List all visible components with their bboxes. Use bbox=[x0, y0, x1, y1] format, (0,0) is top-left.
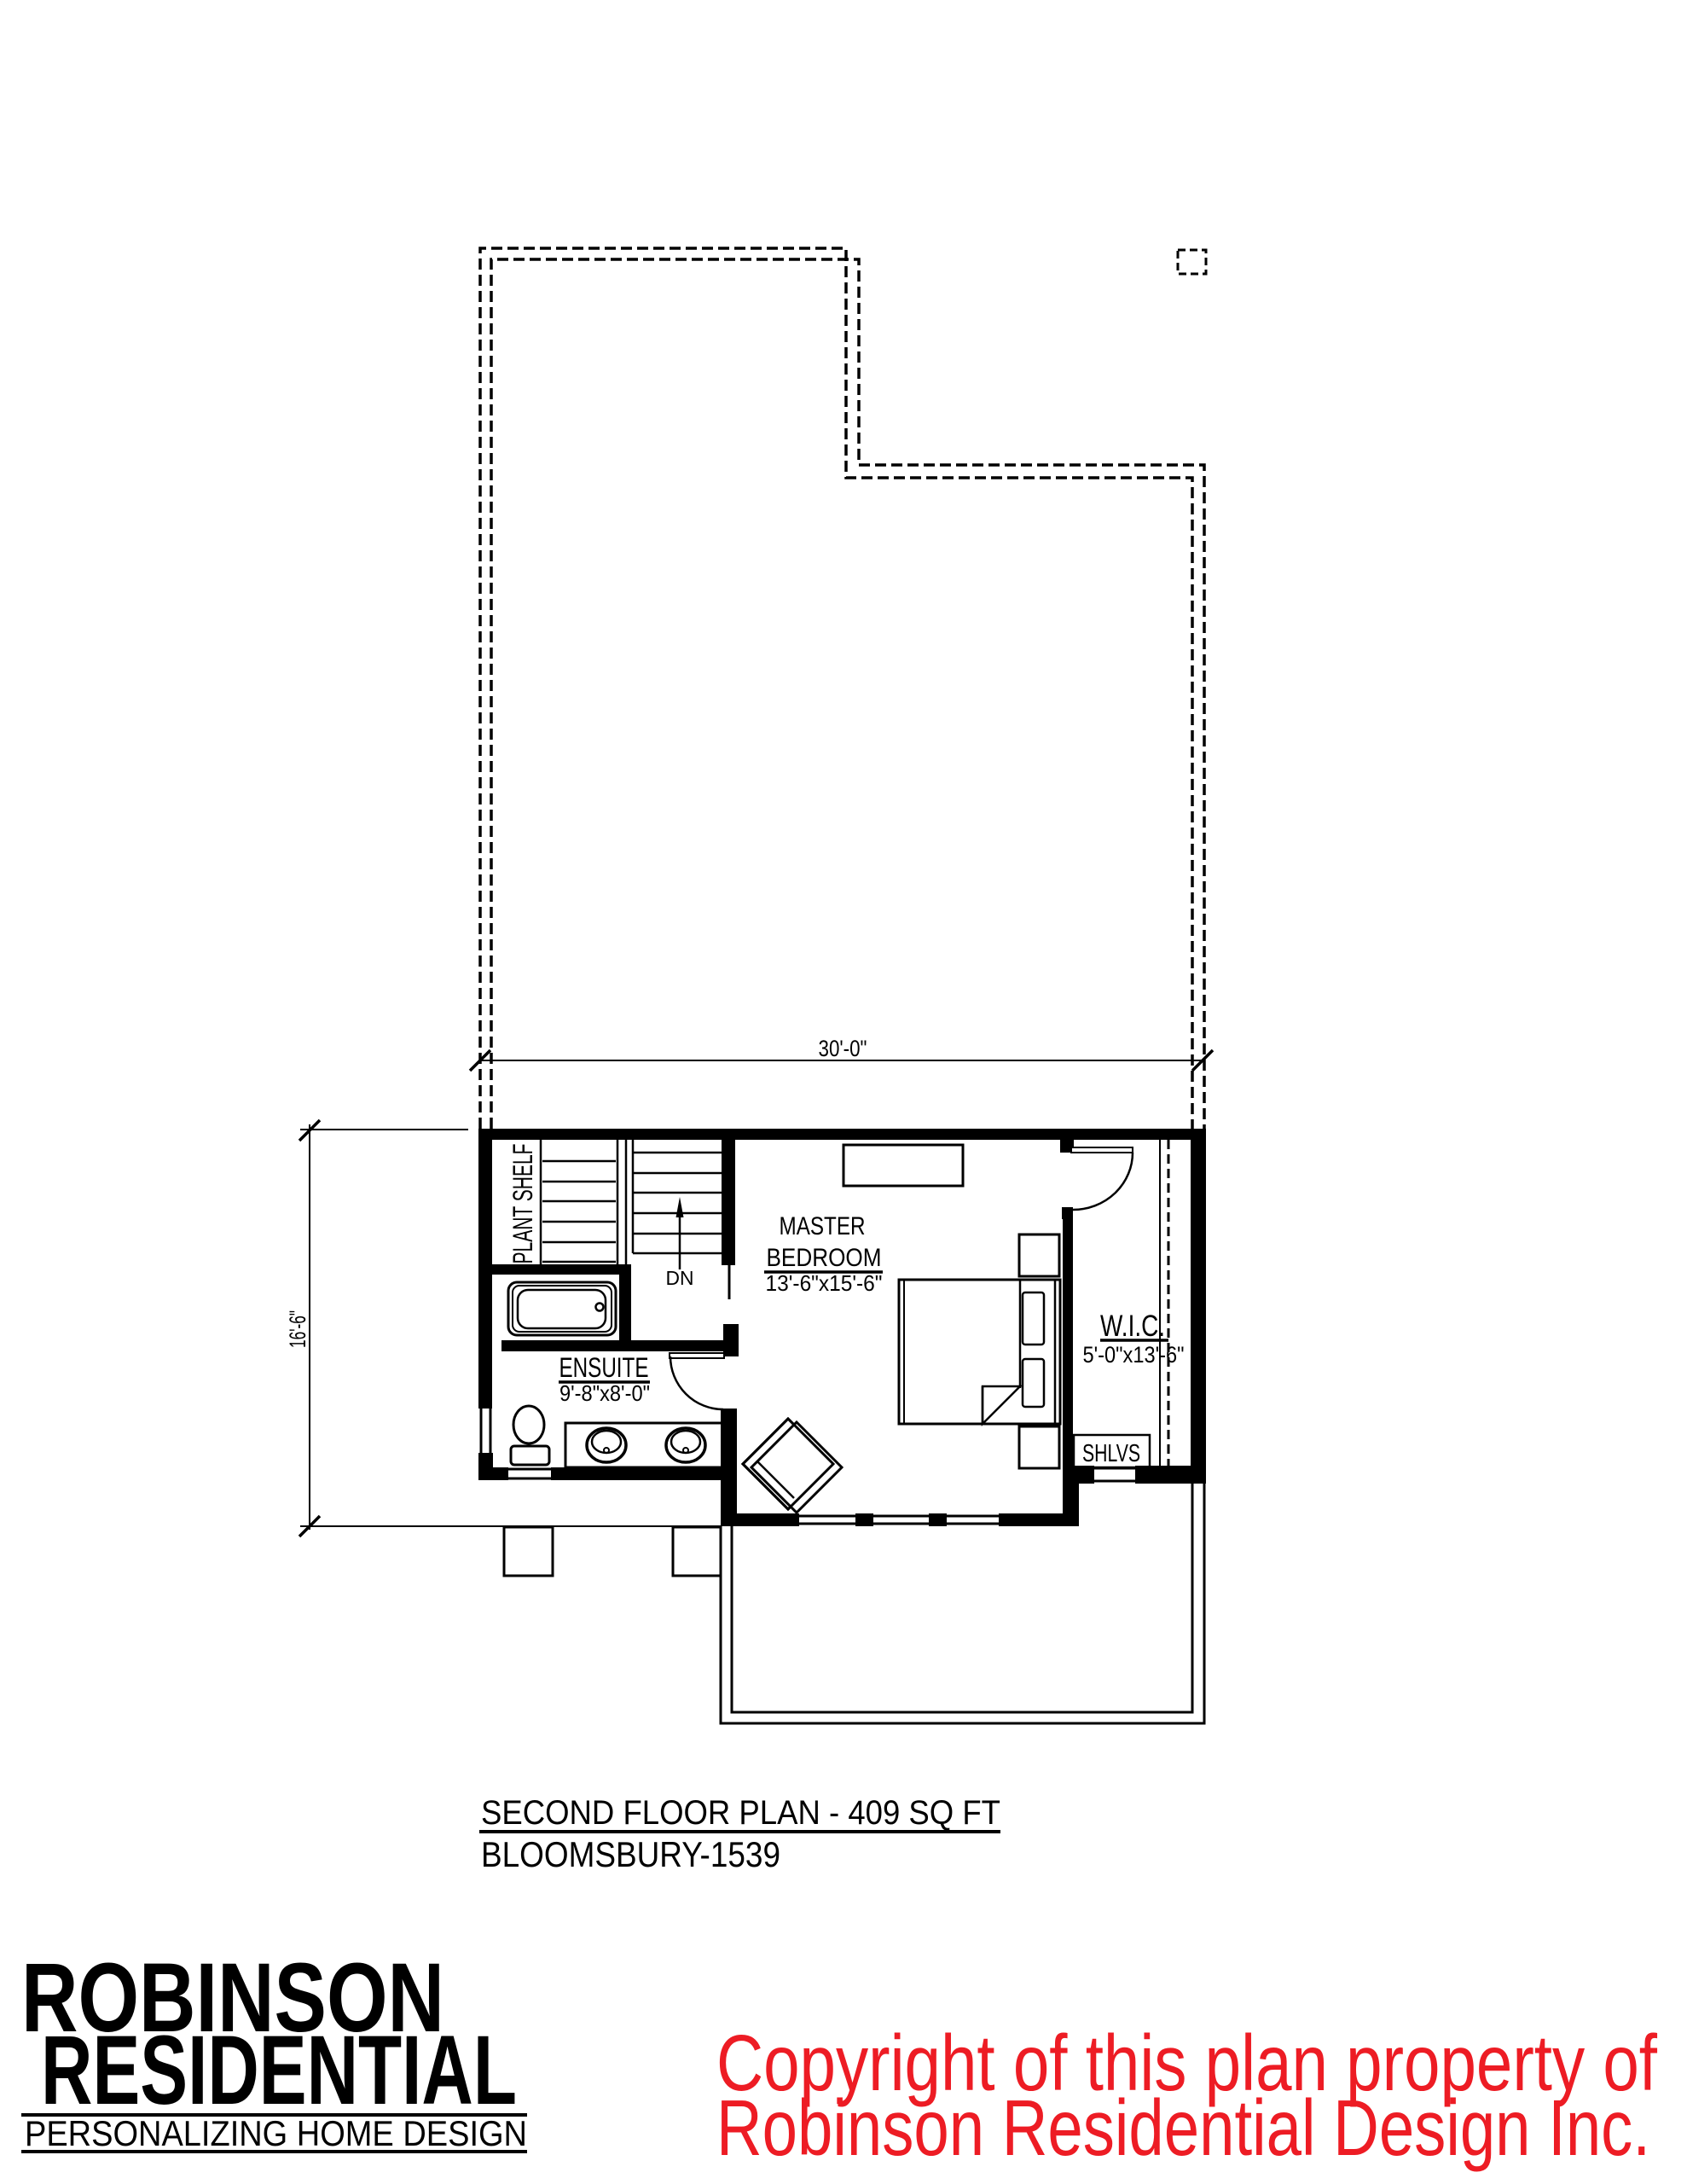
svg-text:SHLVS: SHLVS bbox=[1082, 1440, 1140, 1467]
svg-text:W.I.C.: W.I.C. bbox=[1100, 1310, 1165, 1343]
svg-text:PLANT SHELF: PLANT SHELF bbox=[507, 1144, 538, 1264]
svg-text:MASTER: MASTER bbox=[780, 1212, 866, 1240]
svg-text:DN: DN bbox=[666, 1267, 694, 1289]
svg-text:PERSONALIZING HOME DESIGN: PERSONALIZING HOME DESIGN bbox=[25, 2113, 527, 2153]
svg-text:16'-6": 16'-6" bbox=[285, 1310, 310, 1348]
svg-text:5'-0"x13'-6": 5'-0"x13'-6" bbox=[1083, 1342, 1185, 1368]
svg-text:RESIDENTIAL: RESIDENTIAL bbox=[41, 2016, 517, 2125]
svg-text:13'-6"x15'-6": 13'-6"x15'-6" bbox=[766, 1270, 883, 1296]
svg-text:30'-0": 30'-0" bbox=[819, 1036, 867, 1061]
svg-text:Robinson Residential Design In: Robinson Residential Design Inc. bbox=[716, 2083, 1650, 2172]
svg-text:BLOOMSBURY-1539: BLOOMSBURY-1539 bbox=[481, 1834, 780, 1874]
svg-text:SECOND FLOOR PLAN - 409 SQ FT: SECOND FLOOR PLAN - 409 SQ FT bbox=[481, 1794, 1000, 1832]
svg-text:9'-8"x8'-0": 9'-8"x8'-0" bbox=[559, 1380, 650, 1406]
svg-text:BEDROOM: BEDROOM bbox=[767, 1244, 882, 1272]
svg-text:ENSUITE: ENSUITE bbox=[559, 1352, 649, 1383]
